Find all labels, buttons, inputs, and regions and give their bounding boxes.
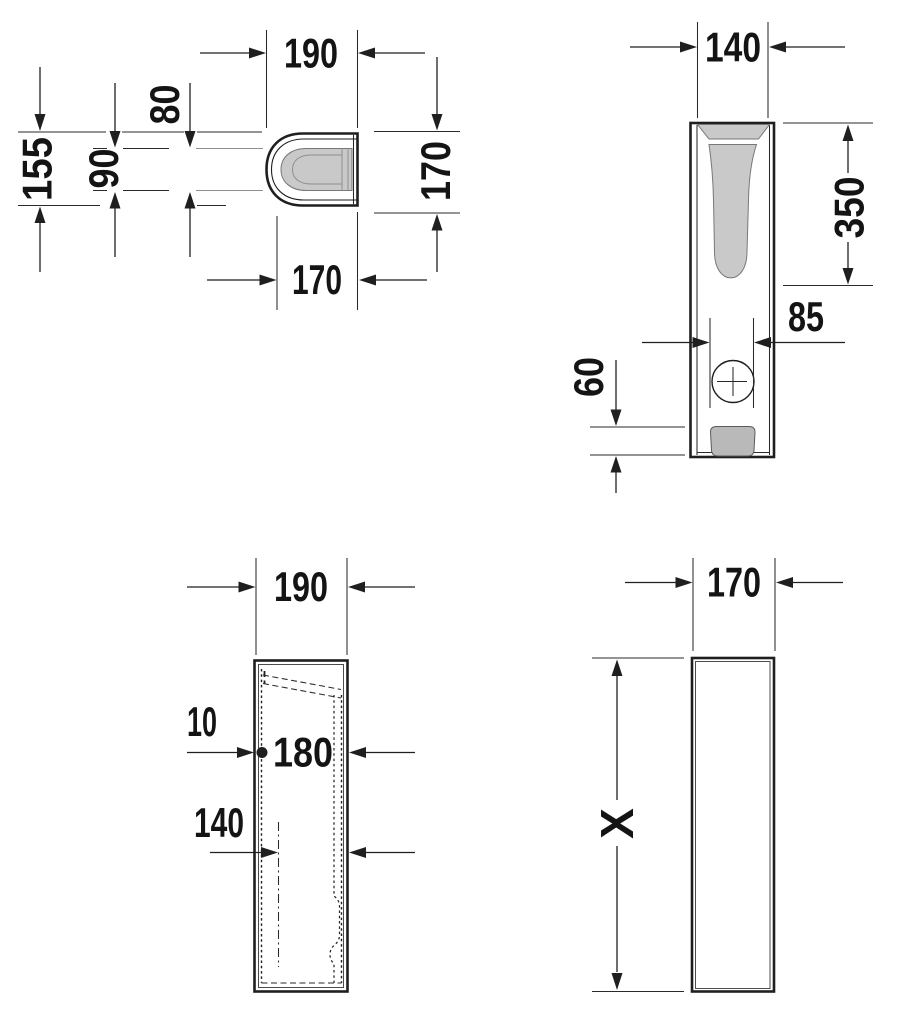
dim-arrowhead [35,207,46,224]
dim-arrowhead [239,582,256,593]
dim-arrowhead [237,747,254,758]
dim-arrowhead [249,48,266,59]
dim-label-plan-rim-width: 90 [80,149,127,189]
dim-label-front-outlet-height: 60 [565,357,612,397]
dim-arrowhead [769,42,786,53]
dim-label-front-top-width: 140 [705,24,761,71]
dim-label-plan-bottom-width: 170 [292,256,342,303]
dim-plan-rim-depth: 80 [141,83,196,257]
dim-label-section-channel-width: 140 [194,799,244,846]
dim-plan-body-depth: 155 [14,67,263,272]
dim-label-front-basin-depth: 350 [826,177,873,239]
dim-front-outlet-height: 60 [565,357,685,493]
front-rim-area [698,125,770,140]
dim-profile-top-width: 170 [625,558,843,651]
dim-label-profile-top-width: 170 [707,559,761,606]
dim-plan-top-width: 190 [200,30,425,129]
dim-arrowhead [680,42,697,53]
dim-arrowhead [35,114,46,131]
dim-plan-bottom-width: 170 [207,212,427,310]
dim-arrowhead [185,192,196,209]
drawing-canvas: 190 155 90 80 [0,0,911,1024]
dim-label-profile-height: X [591,808,643,839]
dim-front-top-width: 140 [630,22,845,118]
front-view: 140 350 85 60 [565,22,873,493]
dim-label-section-wall-offset: 10 [187,698,217,745]
dim-arrowhead [676,577,693,588]
dim-arrowhead [260,275,277,286]
dim-arrowhead [110,131,121,148]
profile-fixture-outline [692,658,774,992]
plan-fixture-outline [267,134,358,206]
dim-arrowhead [612,660,623,677]
section-fixture-outline [255,661,348,992]
dim-arrowhead [359,275,376,286]
dim-arrowhead [611,410,622,427]
dim-section-inner-width: 180 [187,729,415,776]
dim-arrowhead [843,125,854,142]
dim-plan-side-height: 170 [374,57,460,272]
dim-arrowhead [612,973,623,990]
dim-arrowhead [432,114,443,131]
dim-label-section-top-width: 190 [274,563,328,610]
dim-profile-height: X [591,658,684,992]
plan-view: 190 155 90 80 [14,30,461,311]
dim-label-section-inner-width: 180 [273,729,333,776]
dim-front-basin-depth: 350 [783,123,873,286]
dim-arrowhead [185,131,196,148]
dim-section-top-width: 190 [187,558,415,655]
dim-arrowhead [349,747,366,758]
dim-label-plan-top-width: 190 [284,30,338,77]
reference-dot [257,747,268,758]
dim-arrowhead [349,847,366,858]
dim-arrowhead [358,48,375,59]
dim-arrowhead [776,577,793,588]
dim-arrowhead [843,268,854,285]
dim-section-wall-offset: 10 [187,698,217,745]
dim-arrowhead [611,456,622,473]
dim-label-plan-side-height: 170 [412,141,459,201]
technical-drawing-page: 190 155 90 80 [0,0,911,1024]
dim-label-plan-rim-depth: 80 [141,85,188,125]
dim-label-front-drain-width: 85 [788,293,824,340]
dim-arrowhead [432,214,443,231]
dim-arrowhead [348,582,365,593]
front-fixture-outline [691,123,775,457]
profile-view: 170 X [591,558,843,992]
dim-arrowhead [110,192,121,209]
section-view: 190 10 180 140 [187,558,415,992]
outlet-block [711,427,756,457]
dim-label-plan-body-depth: 155 [14,137,61,201]
